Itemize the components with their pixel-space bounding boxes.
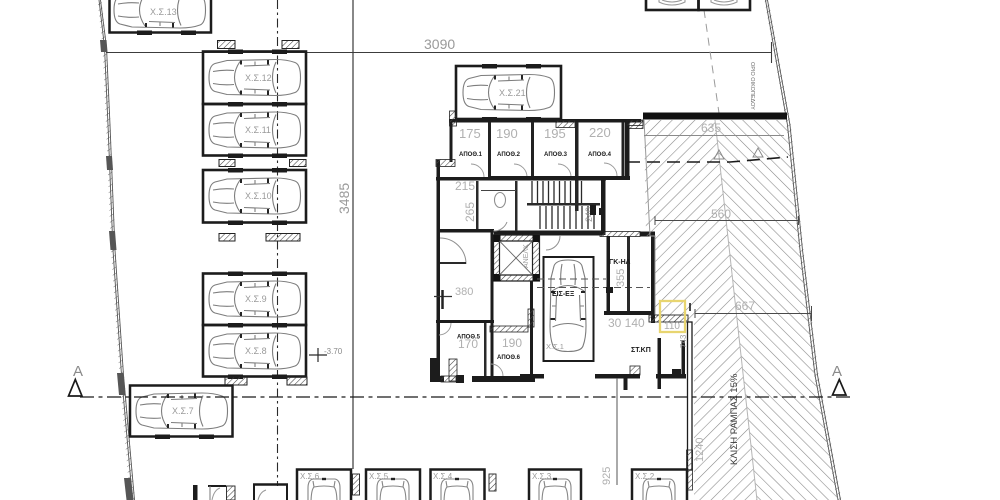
svg-text:Χ.Σ.11: Χ.Σ.11	[245, 125, 271, 135]
svg-text:ΑΠΟΘ.1: ΑΠΟΘ.1	[459, 152, 483, 158]
svg-text:ΓΚ-ΗΛ: ΓΚ-ΗΛ	[609, 259, 631, 266]
svg-text:175: 175	[459, 126, 481, 141]
svg-text:ΕΙΣ-ΕΞ: ΕΙΣ-ΕΞ	[552, 291, 575, 298]
svg-text:-3.70: -3.70	[324, 347, 343, 356]
svg-text:ΣΤ.ΚΠ: ΣΤ.ΚΠ	[631, 347, 651, 354]
svg-text:ΟΡΙΟ ΟΙΚΟΠΕΔΟΥ: ΟΡΙΟ ΟΙΚΟΠΕΔΟΥ	[749, 62, 755, 110]
svg-text:A: A	[73, 363, 83, 380]
svg-text:A: A	[832, 363, 842, 380]
svg-text:1240: 1240	[694, 438, 706, 462]
svg-text:Χ.Σ.3: Χ.Σ.3	[532, 472, 552, 481]
svg-text:Χ.Σ.9: Χ.Σ.9	[245, 294, 267, 304]
svg-text:ΚΛΙΣΗ ΡΑΜΠΑΣ 15%: ΚΛΙΣΗ ΡΑΜΠΑΣ 15%	[729, 373, 740, 465]
svg-text:Χ.Σ.6: Χ.Σ.6	[300, 472, 320, 481]
svg-text:560: 560	[711, 207, 731, 221]
svg-text:3090: 3090	[424, 36, 455, 52]
svg-text:ΑΠΟΘ.2: ΑΠΟΘ.2	[497, 152, 521, 158]
svg-text:743: 743	[679, 334, 688, 348]
svg-text:667: 667	[735, 299, 755, 313]
svg-text:30 140: 30 140	[608, 316, 645, 330]
svg-text:Χ.Σ.21: Χ.Σ.21	[499, 88, 526, 98]
svg-text:355: 355	[615, 269, 627, 287]
svg-text:265: 265	[463, 202, 477, 222]
svg-text:215: 215	[455, 179, 475, 193]
svg-text:ΑΝΕΛΚ: ΑΝΕΛΚ	[523, 244, 530, 268]
svg-text:ΑΠΟΘ.4: ΑΠΟΘ.4	[588, 152, 612, 158]
svg-text:190: 190	[502, 336, 522, 350]
svg-text:380: 380	[455, 286, 473, 298]
svg-text:925: 925	[601, 467, 613, 485]
svg-text:Χ.Σ.5: Χ.Σ.5	[369, 472, 389, 481]
svg-text:Χ.Σ.4: Χ.Σ.4	[433, 472, 453, 481]
svg-text:Χ.Σ.13: Χ.Σ.13	[150, 7, 177, 17]
svg-text:190: 190	[496, 126, 518, 141]
svg-text:635: 635	[701, 121, 721, 135]
svg-text:Χ.Σ.10: Χ.Σ.10	[245, 191, 272, 201]
svg-text:3485: 3485	[336, 183, 352, 214]
svg-text:ΑΠΟΘ.5: ΑΠΟΘ.5	[457, 335, 481, 341]
svg-text:Χ.Σ.7: Χ.Σ.7	[172, 406, 194, 416]
svg-text:Χ.Σ.1: Χ.Σ.1	[546, 342, 564, 351]
svg-text:ΑΠΟΘ.3: ΑΠΟΘ.3	[544, 152, 568, 158]
svg-text:Χ.Σ.2: Χ.Σ.2	[635, 472, 655, 481]
svg-text:Χ.Σ.12: Χ.Σ.12	[245, 73, 272, 83]
svg-text:ΑΠΟΘ.6: ΑΠΟΘ.6	[497, 355, 521, 361]
svg-text:Χ.Σ.8: Χ.Σ.8	[245, 346, 267, 356]
svg-text:195: 195	[544, 126, 566, 141]
svg-text:110: 110	[664, 321, 680, 332]
svg-text:220: 220	[589, 125, 611, 140]
